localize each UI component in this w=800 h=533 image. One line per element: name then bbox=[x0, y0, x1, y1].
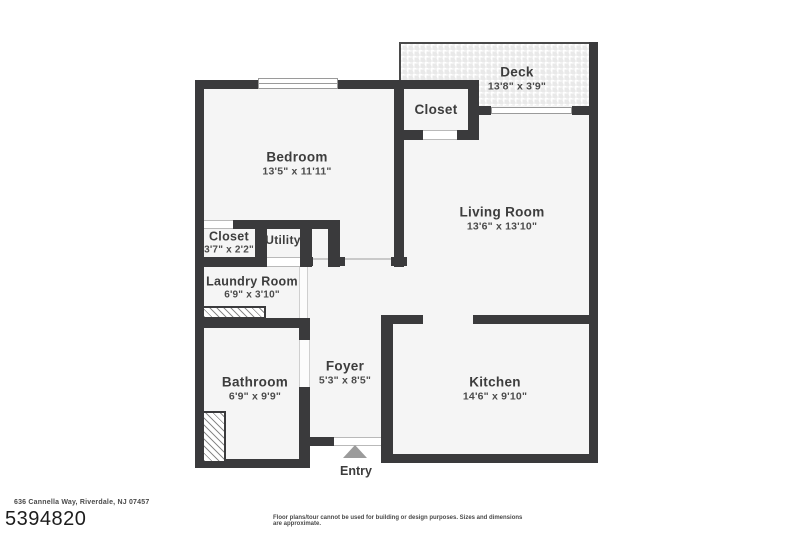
window-symbol bbox=[258, 78, 338, 89]
living-room-dims: 13'6" x 13'10" bbox=[459, 220, 544, 234]
bedroom-dims: 13'5" x 11'11" bbox=[262, 165, 331, 179]
closet-lower-name: Closet bbox=[204, 229, 254, 243]
room-label-bathroom: Bathroom 6'9" x 9'9" bbox=[222, 374, 288, 403]
wall-left-exterior bbox=[195, 80, 204, 468]
wall-bedroom-right-foot bbox=[391, 257, 407, 266]
deck-dims: 13'8" x 3'9" bbox=[488, 80, 546, 94]
closet-lower-dims: 3'7" x 2'2" bbox=[204, 244, 254, 257]
foyer-name: Foyer bbox=[319, 358, 371, 374]
deck-border-left bbox=[399, 42, 401, 80]
deck-name: Deck bbox=[488, 64, 546, 80]
laundry-opening bbox=[299, 267, 308, 318]
property-address: 636 Cannella Way, Riverdale, NJ 07457 bbox=[14, 499, 149, 506]
bathroom-door-opening bbox=[299, 340, 310, 387]
listing-id: 5394820 bbox=[5, 508, 86, 531]
wall-kitchen-top bbox=[473, 315, 598, 324]
closet-lower-opening bbox=[204, 220, 233, 229]
wall-kitchen-left bbox=[381, 315, 393, 463]
entry-arrow-icon bbox=[343, 445, 367, 458]
utility-name: Utility bbox=[265, 234, 300, 248]
room-label-foyer: Foyer 5'3" x 8'5" bbox=[319, 358, 371, 387]
wall-kitchen-bottom bbox=[381, 454, 598, 463]
wall-closet-upper-bottom bbox=[404, 130, 423, 140]
utility-door-opening bbox=[267, 257, 300, 267]
room-label-deck: Deck 13'8" x 3'9" bbox=[488, 64, 546, 93]
wall-bedroom-right bbox=[394, 80, 404, 267]
laundry-name: Laundry Room bbox=[206, 274, 298, 288]
room-label-utility: Utility bbox=[265, 234, 300, 248]
living-room-name: Living Room bbox=[459, 204, 544, 220]
bathroom-name: Bathroom bbox=[222, 374, 288, 390]
bedroom-door-threshold bbox=[345, 258, 391, 260]
wall-laundry-bottom bbox=[195, 318, 310, 328]
shower-hatch bbox=[202, 411, 226, 463]
closet-upper-name: Closet bbox=[414, 102, 457, 118]
kitchen-name: Kitchen bbox=[463, 374, 527, 390]
room-label-kitchen: Kitchen 14'6" x 9'10" bbox=[463, 374, 527, 403]
wall-hall-pier-foot bbox=[328, 257, 345, 266]
wall-closet-upper-bottom bbox=[457, 130, 479, 140]
laundry-dims: 6'9" x 3'10" bbox=[206, 289, 298, 302]
deck-border-top bbox=[399, 42, 598, 44]
foyer-dims: 5'3" x 8'5" bbox=[319, 374, 371, 388]
disclaimer-text: Floor plans/tour cannot be used for buil… bbox=[273, 515, 533, 527]
room-label-closet-lower: Closet 3'7" x 2'2" bbox=[204, 229, 254, 256]
closet-upper-door-opening bbox=[423, 130, 457, 140]
entry-label: Entry bbox=[340, 464, 372, 478]
bedroom-name: Bedroom bbox=[262, 149, 331, 165]
room-label-closet-upper: Closet bbox=[414, 102, 457, 118]
wall-bathroom-right-lower bbox=[299, 387, 310, 459]
hall-niche-threshold bbox=[313, 258, 328, 260]
wall-foyer-bottom bbox=[299, 437, 334, 446]
wall-deck-bottom bbox=[572, 106, 598, 115]
sliding-door-symbol bbox=[491, 107, 572, 114]
kitchen-dims: 14'6" x 9'10" bbox=[463, 390, 527, 404]
wall-kitchen-top bbox=[381, 315, 423, 324]
room-label-laundry: Laundry Room 6'9" x 3'10" bbox=[206, 274, 298, 301]
floor-plan: Bedroom 13'5" x 11'11" Closet Deck 13'8"… bbox=[0, 0, 800, 533]
wall-bedroom-bottom bbox=[233, 220, 340, 229]
wall-utility-right-foot bbox=[300, 257, 313, 266]
wall-closet-lower-bottom bbox=[195, 257, 255, 267]
wall-bathroom-right-upper bbox=[299, 318, 310, 340]
bathroom-dims: 6'9" x 9'9" bbox=[222, 390, 288, 404]
room-label-living-room: Living Room 13'6" x 13'10" bbox=[459, 204, 544, 233]
laundry-appliance-hatch bbox=[202, 306, 266, 319]
wall-deck-bottom bbox=[479, 106, 491, 115]
room-label-bedroom: Bedroom 13'5" x 11'11" bbox=[262, 149, 331, 178]
